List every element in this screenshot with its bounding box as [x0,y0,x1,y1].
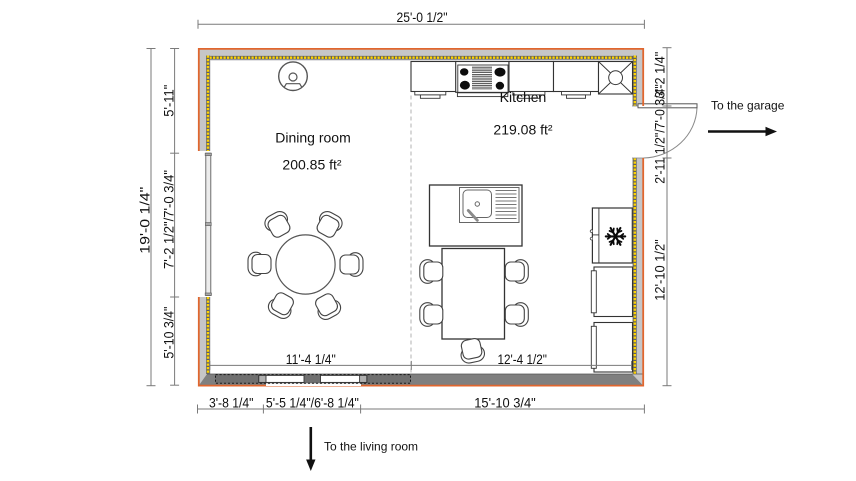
svg-text:3'-8 1/4": 3'-8 1/4" [209,396,254,411]
svg-text:15'-10 3/4": 15'-10 3/4" [474,396,536,411]
svg-text:5'-11": 5'-11" [161,85,176,117]
svg-text:2'-11 1/2"/7'-0 3/4": 2'-11 1/2"/7'-0 3/4" [652,84,667,184]
svg-text:11'-4 1/4": 11'-4 1/4" [286,352,336,367]
svg-text:To the garage: To the garage [711,98,785,112]
svg-text:25'-0 1/2": 25'-0 1/2" [397,10,448,25]
svg-text:5'-10 3/4": 5'-10 3/4" [161,306,176,358]
svg-text:200.85 ft²: 200.85 ft² [282,157,341,173]
svg-text:12'-10 1/2": 12'-10 1/2" [652,239,667,301]
svg-text:Kitchen: Kitchen [500,89,547,105]
svg-text:219.08 ft²: 219.08 ft² [493,121,552,137]
svg-text:5'-5 1/4"/6'-8 1/4": 5'-5 1/4"/6'-8 1/4" [266,396,359,411]
svg-text:12'-4 1/2": 12'-4 1/2" [497,352,547,367]
svg-text:7'-2 1/2"/7'-0 3/4": 7'-2 1/2"/7'-0 3/4" [161,170,176,269]
svg-text:Dining room: Dining room [275,130,350,146]
svg-text:To the living room: To the living room [324,439,418,453]
svg-text:19'-0 1/4": 19'-0 1/4" [137,186,152,253]
